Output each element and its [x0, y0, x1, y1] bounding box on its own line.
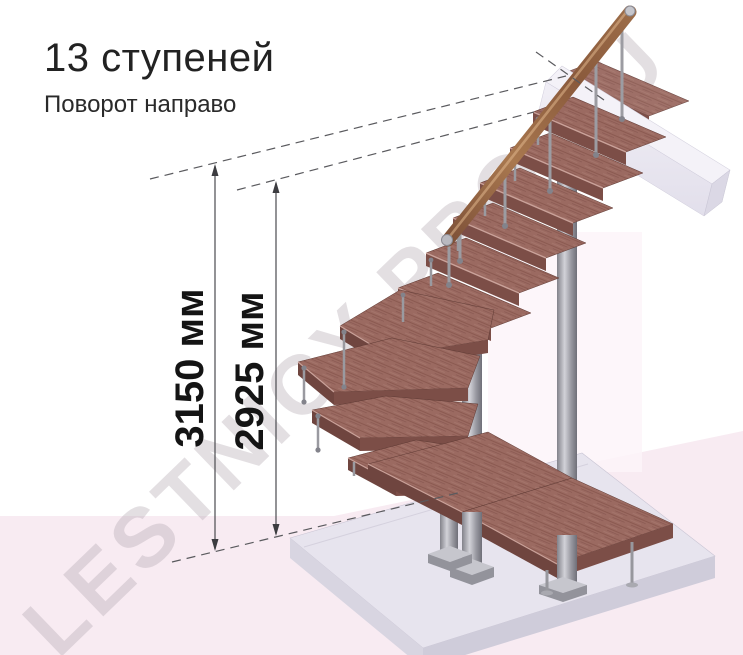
handrail-top-cap: [625, 6, 635, 16]
tread1-leg-left-foot: [541, 591, 553, 596]
flight-column-foot: [557, 535, 577, 585]
diagram-canvas: LESTNICY-PRO.RU: [0, 0, 743, 655]
dimension-label-upper-height: 2925 мм: [228, 291, 272, 450]
tread1-leg-right-foot: [626, 583, 638, 588]
dimension-label-total-height: 3150 мм: [168, 288, 212, 447]
title-block: 13 ступеней Поворот направо: [44, 36, 274, 119]
page-subtitle: Поворот направо: [44, 91, 274, 119]
handrail-bottom-cap: [442, 235, 453, 246]
page-title: 13 ступеней: [44, 36, 274, 81]
